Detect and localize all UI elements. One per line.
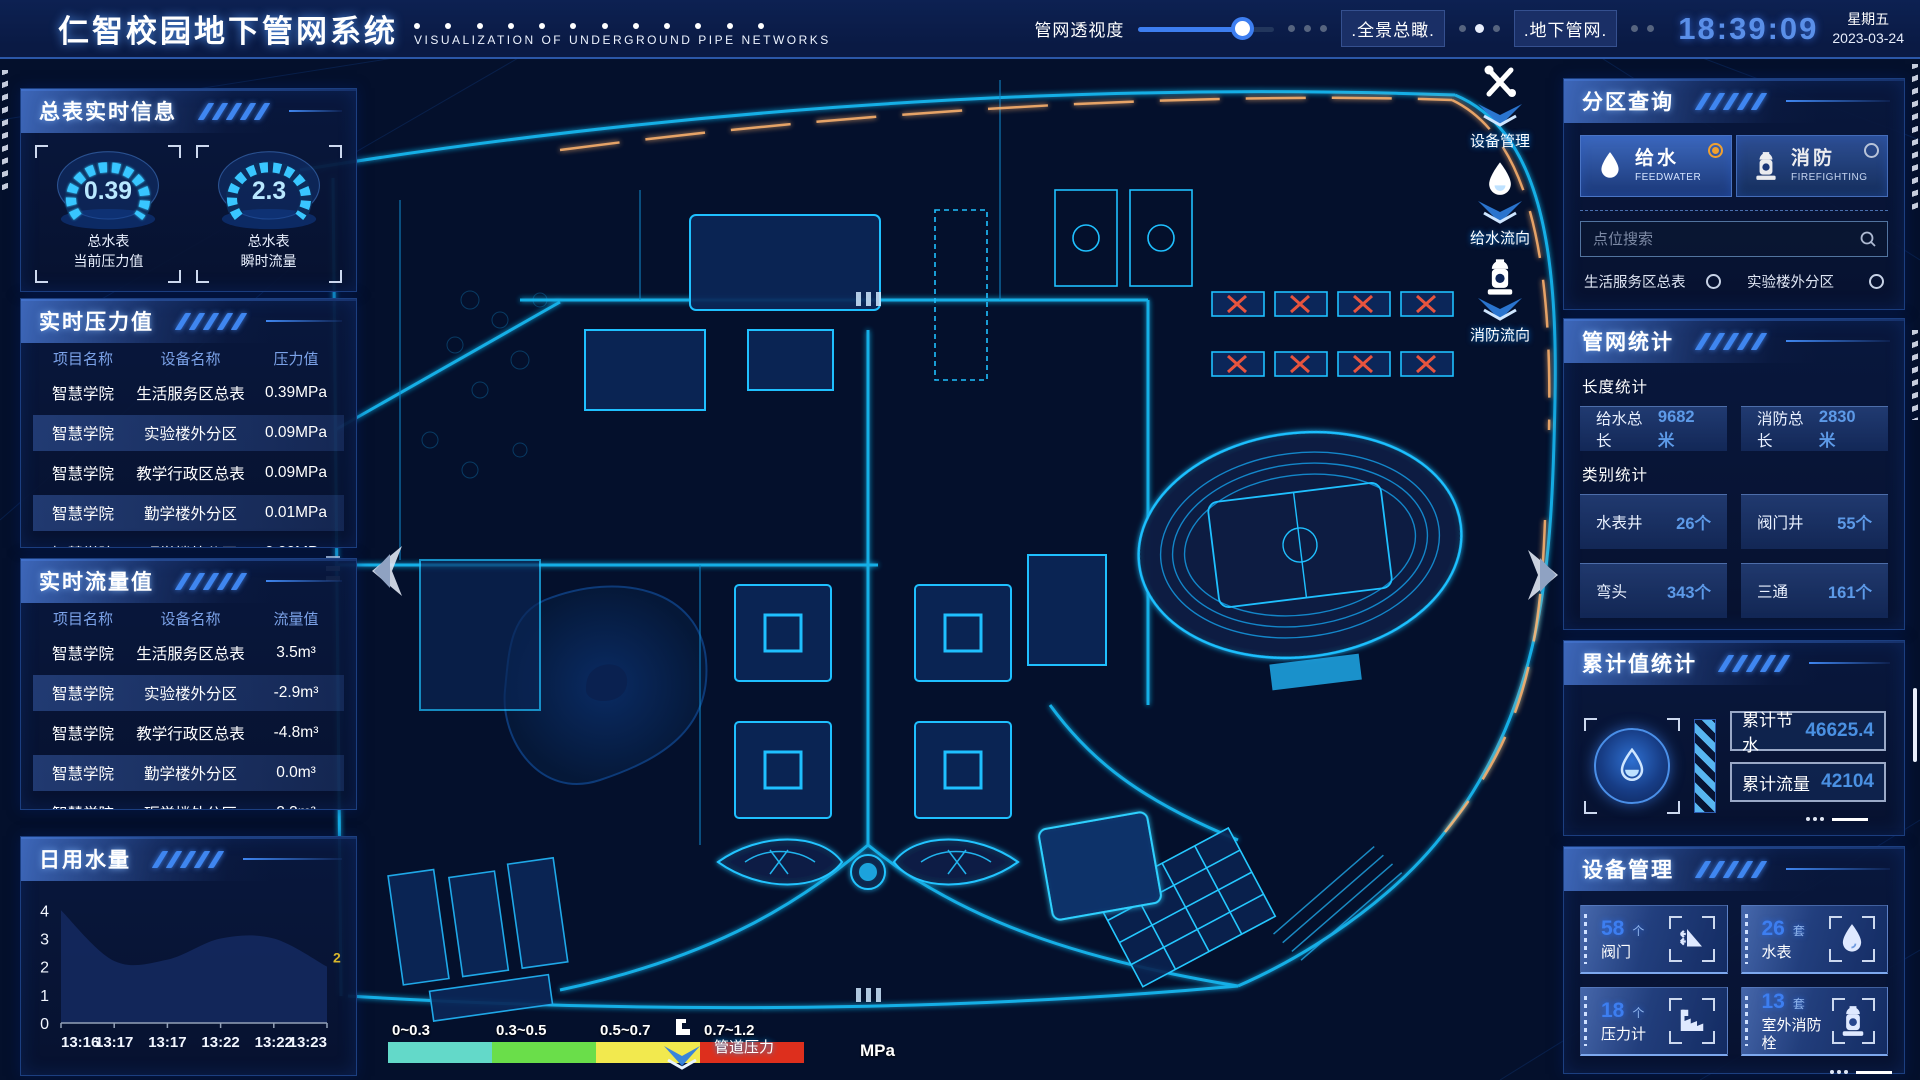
- pressure-table: 项目名称设备名称压力值 智慧学院生活服务区总表0.39MPa 智慧学院实验楼外分…: [21, 343, 356, 548]
- chevron-down-icon: [1474, 296, 1526, 322]
- svg-text:2: 2: [40, 960, 49, 977]
- chevron-down-icon: [1474, 199, 1526, 225]
- radio-selected[interactable]: [1708, 143, 1723, 158]
- water-meter-icon: [1829, 916, 1875, 962]
- panel-title: 分区查询: [1582, 86, 1674, 116]
- panel-title: 实时流量值: [39, 566, 154, 596]
- table-row: 智慧学院教学行政区总表-4.8m³: [33, 715, 344, 751]
- svg-text:13:22: 13:22: [255, 1034, 293, 1051]
- device-card-hydrants[interactable]: 13套 室外消防栓: [1741, 987, 1889, 1056]
- slash-decoration: [1700, 93, 1770, 110]
- svg-text:0.39: 0.39: [84, 178, 132, 205]
- device-card-valves[interactable]: 58个 阀门: [1580, 905, 1728, 974]
- accumulated-flow: 累计流量42104: [1730, 762, 1886, 802]
- gauge-flow: 2.3 总水表瞬时流量: [196, 145, 342, 283]
- pipe-opacity-slider[interactable]: [1138, 18, 1274, 40]
- panel-realtime-flow: 实时流量值 项目名称设备名称流量值 智慧学院生活服务区总表3.5m³ 智慧学院实…: [20, 558, 357, 810]
- panel-daily-water: 日用水量 0123413:1613:1713:1713:2213:2213:23…: [20, 836, 357, 1076]
- category-stats-label: 类别统计: [1582, 463, 1904, 485]
- slider-thumb[interactable]: [1231, 17, 1254, 40]
- table-row: 智慧学院生活服务区总表0.39MPa: [33, 375, 344, 411]
- point-list: 生活服务区总表 实验楼外分区 教学行政区总表 勤学楼外分区 砺学楼外分区 宿舍区…: [1564, 257, 1904, 310]
- pressure-legend: 0~0.3 0.3~0.5 0.5~0.7 0.7~1.2 MPa: [388, 1022, 895, 1063]
- app-subtitle: VISUALIZATION OF UNDERGROUND PIPE NETWOR…: [414, 33, 831, 47]
- svg-text:13:23: 13:23: [289, 1034, 327, 1051]
- water-drop-icon: [1483, 161, 1517, 199]
- pipe-opacity-label: 管网透视度: [1034, 16, 1124, 41]
- length-stats-label: 长度统计: [1582, 375, 1904, 397]
- stat-tees: 三通161个: [1741, 563, 1888, 618]
- edge-decoration: [1912, 330, 1918, 420]
- svg-text:0: 0: [40, 1016, 49, 1033]
- gauge-dial: 0.39: [38, 145, 178, 237]
- flow-table: 项目名称设备名称流量值 智慧学院生活服务区总表3.5m³ 智慧学院实验楼外分区-…: [21, 603, 356, 810]
- slash-decoration: [203, 103, 273, 120]
- svg-text:2: 2: [333, 950, 341, 966]
- panel-device-management: 设备管理 58个 阀门 26套 水表: [1563, 846, 1905, 1074]
- accumulated-water-saved: 累计节水46625.4: [1730, 711, 1886, 751]
- svg-text:4: 4: [40, 903, 49, 920]
- clock-weekday: 星期五: [1847, 10, 1889, 29]
- device-card-pressure-gauges[interactable]: 18个 压力计: [1580, 987, 1728, 1056]
- table-row: 智慧学院教学行政区总表0.09MPa: [33, 455, 344, 491]
- underground-pipes-button[interactable]: .地下管网.: [1514, 10, 1617, 47]
- slash-decoration: [180, 313, 250, 330]
- panel-title: 总表实时信息: [39, 96, 177, 126]
- radio-unselected[interactable]: [1869, 274, 1884, 289]
- table-row: 智慧学院砺学楼外分区2.3m³: [33, 795, 344, 810]
- radio-unselected[interactable]: [1869, 309, 1884, 310]
- clock: 18:39:09 星期五 2023-03-24: [1678, 10, 1904, 48]
- dashboard-root: 仁智校园地下管网系统 VISUALIZATION OF UNDERGROUND …: [0, 0, 1920, 1080]
- water-drop-icon: [1594, 728, 1670, 804]
- slash-decoration: [1700, 333, 1770, 350]
- edge-decoration: [1912, 64, 1918, 214]
- svg-text:13:16: 13:16: [61, 1034, 99, 1051]
- hydrant-icon: [1832, 998, 1875, 1044]
- pipe-icon: [667, 1018, 697, 1044]
- legend-unit: MPa: [860, 1041, 895, 1061]
- chevron-down-icon: [1474, 102, 1526, 128]
- panel-title: 累计值统计: [1582, 648, 1697, 678]
- pipe-pressure-label: 管道压力: [714, 1036, 774, 1057]
- hazard-stripe-divider: [1694, 719, 1716, 813]
- tool-fire-flow[interactable]: 消防流向: [1470, 258, 1530, 345]
- table-row: 智慧学院勤学楼外分区0.01MPa: [33, 495, 344, 531]
- decoration: [1730, 813, 1886, 821]
- corner-decoration: [1830, 1066, 1910, 1074]
- title-dots: [414, 23, 764, 29]
- tool-device-management[interactable]: 设备管理: [1470, 62, 1530, 151]
- tool-feedwater-flow[interactable]: 给水流向: [1470, 161, 1530, 248]
- stat-water-meter-wells: 水表井26个: [1580, 494, 1727, 549]
- panel-accumulated: 累计值统计 累计节水46625.4 累计流量42104: [1563, 640, 1905, 836]
- dot-separator: [1631, 25, 1654, 32]
- device-card-water-meters[interactable]: 26套 水表: [1741, 905, 1889, 974]
- radio-unselected[interactable]: [1864, 143, 1879, 158]
- scrollbar[interactable]: [1913, 688, 1917, 762]
- mode-feedwater-button[interactable]: 给水FEEDWATER: [1580, 135, 1732, 197]
- edge-decoration: [2, 70, 8, 190]
- svg-text:1: 1: [40, 988, 49, 1005]
- list-item[interactable]: 实验楼外分区: [1747, 267, 1884, 296]
- panel-title: 实时压力值: [39, 306, 154, 336]
- stat-fire-length: 消防总长2830米: [1741, 406, 1888, 451]
- search-icon[interactable]: [1859, 230, 1877, 248]
- table-row: 智慧学院生活服务区总表3.5m³: [33, 635, 344, 671]
- slash-decoration: [1723, 655, 1793, 672]
- radio-unselected[interactable]: [1706, 274, 1721, 289]
- wrench-icon: [1479, 62, 1521, 102]
- water-drop-icon: [1597, 151, 1623, 181]
- panel-title: 管网统计: [1582, 326, 1674, 356]
- slash-decoration: [157, 851, 227, 868]
- panel-zone-query: 分区查询 给水FEEDWATER 消防FIREFIGHTING: [1563, 78, 1905, 310]
- legend-swatch: [388, 1042, 492, 1063]
- svg-text:13:17: 13:17: [148, 1034, 186, 1051]
- list-item[interactable]: 教学行政区总表: [1584, 302, 1721, 310]
- dot-separator: [1459, 24, 1500, 33]
- dashed-divider: [1580, 210, 1888, 211]
- table-row: 智慧学院砺学楼外分区0.00MPa: [33, 535, 344, 548]
- valve-icon: [1669, 916, 1715, 962]
- top-header: 仁智校园地下管网系统 VISUALIZATION OF UNDERGROUND …: [0, 0, 1920, 59]
- table-row: 智慧学院实验楼外分区0.09MPa: [33, 415, 344, 451]
- dot-separator: [1288, 25, 1327, 32]
- panel-realtime-pressure: 实时压力值 项目名称设备名称压力值 智慧学院生活服务区总表0.39MPa 智慧学…: [20, 298, 357, 548]
- slash-decoration: [180, 573, 250, 590]
- svg-text:3: 3: [40, 931, 49, 948]
- water-saving-icon-frame: [1584, 718, 1680, 814]
- gauge-pressure: 0.39 总水表当前压力值: [35, 145, 181, 283]
- stat-valve-wells: 阀门井55个: [1741, 494, 1888, 549]
- hydrant-icon: [1753, 151, 1779, 181]
- panel-title: 日用水量: [39, 844, 131, 874]
- search-input[interactable]: [1591, 230, 1859, 249]
- app-title: 仁智校园地下管网系统: [58, 6, 398, 51]
- clock-date: 2023-03-24: [1832, 29, 1904, 48]
- list-item[interactable]: 勤学楼外分区: [1747, 302, 1884, 310]
- list-item[interactable]: 生活服务区总表: [1584, 267, 1721, 296]
- pan-left-arrow[interactable]: [366, 544, 406, 598]
- pan-right-arrow[interactable]: [1524, 548, 1564, 602]
- map-tool-column: 设备管理 给水流向 消防流向: [1468, 62, 1532, 355]
- radio-unselected[interactable]: [1706, 309, 1721, 310]
- slash-decoration: [1700, 861, 1770, 878]
- panel-title: 设备管理: [1582, 854, 1674, 884]
- panel-pipe-stats: 管网统计 长度统计 给水总长9682米 消防总长2830米 类别统计 水表井26…: [1563, 318, 1905, 630]
- panel-realtime-info: 总表实时信息 0.39 总水表当前压力值: [20, 88, 357, 292]
- daily-water-chart: 0123413:1613:1713:1713:2213:2213:232: [27, 885, 349, 1065]
- table-row: 智慧学院勤学楼外分区0.0m³: [33, 755, 344, 791]
- chevron-down-icon: [660, 1044, 704, 1074]
- svg-text:13:17: 13:17: [95, 1034, 133, 1051]
- mode-firefighting-button[interactable]: 消防FIREFIGHTING: [1736, 135, 1888, 197]
- svg-text:13:22: 13:22: [201, 1034, 239, 1051]
- stat-feedwater-length: 给水总长9682米: [1580, 406, 1727, 451]
- svg-text:2.3: 2.3: [252, 178, 286, 205]
- table-row: 智慧学院实验楼外分区-2.9m³: [33, 675, 344, 711]
- clock-time: 18:39:09: [1678, 11, 1818, 47]
- stat-elbows: 弯头343个: [1580, 563, 1727, 618]
- legend-swatch: [492, 1042, 596, 1063]
- panorama-button[interactable]: .全景总瞰.: [1341, 10, 1444, 47]
- gauge-dial: 2.3: [199, 145, 339, 237]
- pipe-pressure-marker[interactable]: 管道压力: [660, 1018, 774, 1074]
- point-search[interactable]: [1580, 221, 1888, 257]
- pressure-gauge-icon: [1669, 998, 1715, 1044]
- hydrant-icon: [1483, 258, 1517, 296]
